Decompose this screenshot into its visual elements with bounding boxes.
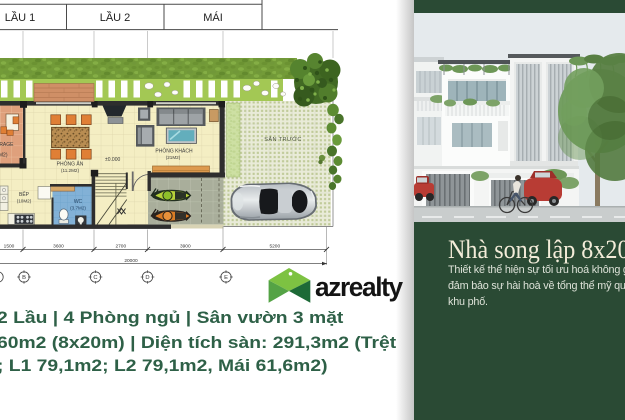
- svg-text:E: E: [224, 275, 228, 281]
- svg-text:(11.2M2): (11.2M2): [61, 168, 80, 173]
- svg-text:GARAGE: GARAGE: [0, 142, 14, 148]
- svg-text:3900: 3900: [180, 244, 191, 250]
- svg-text:MÁI: MÁI: [203, 11, 223, 24]
- svg-text:±0.000: ±0.000: [105, 157, 120, 163]
- svg-text:B: B: [22, 275, 26, 281]
- svg-text:3600: 3600: [53, 244, 64, 250]
- svg-text:PHÒNG ĂN: PHÒNG ĂN: [57, 161, 84, 168]
- svg-text:C: C: [93, 275, 97, 281]
- svg-text:D: D: [145, 275, 149, 281]
- svg-text:BẾP: BẾP: [19, 191, 30, 198]
- svg-text:SÂN TRƯỚC: SÂN TRƯỚC: [264, 136, 302, 143]
- svg-text:2700: 2700: [115, 244, 126, 250]
- svg-text:(21M2): (21M2): [166, 155, 181, 160]
- svg-text:LẦU 2: LẦU 2: [100, 11, 131, 24]
- svg-text:WC: WC: [74, 199, 83, 205]
- svg-text:(10M2): (10M2): [17, 199, 32, 204]
- svg-text:1500: 1500: [4, 244, 15, 250]
- svg-text:PHÒNG KHÁCH: PHÒNG KHÁCH: [155, 148, 193, 155]
- svg-text:5200: 5200: [269, 244, 280, 250]
- svg-text:LẦU 1: LẦU 1: [5, 11, 36, 24]
- svg-text:20000: 20000: [124, 258, 138, 264]
- svg-text:(18M2): (18M2): [0, 153, 8, 159]
- svg-text:(3.7M2): (3.7M2): [70, 206, 86, 211]
